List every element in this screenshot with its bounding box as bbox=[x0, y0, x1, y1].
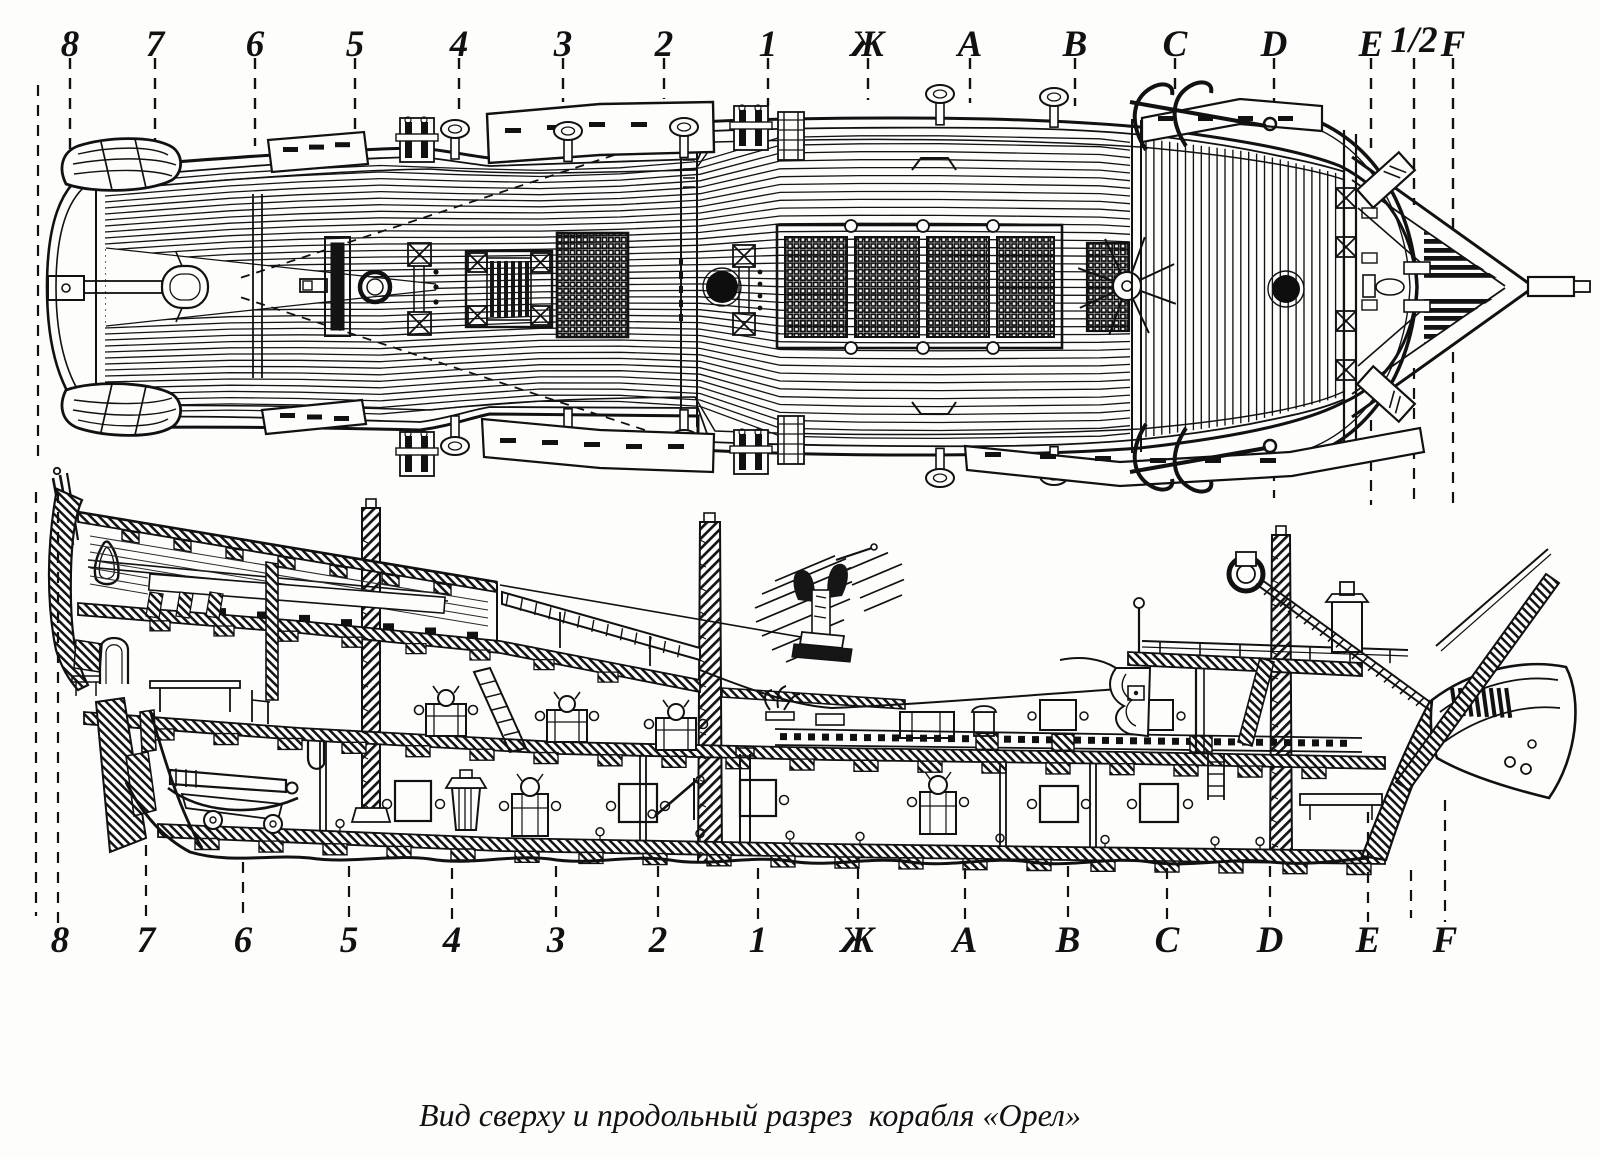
svg-text:F: F bbox=[1440, 24, 1466, 65]
svg-text:3: 3 bbox=[546, 920, 566, 961]
svg-text:A: A bbox=[956, 24, 983, 65]
svg-text:1: 1 bbox=[749, 920, 768, 961]
svg-text:5: 5 bbox=[346, 24, 365, 65]
svg-text:1/2: 1/2 bbox=[1390, 20, 1437, 61]
svg-text:Вид сверху и продольный разрез: Вид сверху и продольный разрез корабля «… bbox=[419, 1097, 1081, 1133]
svg-text:8: 8 bbox=[61, 24, 80, 65]
svg-text:F: F bbox=[1432, 920, 1458, 961]
svg-text:8: 8 bbox=[51, 920, 70, 961]
svg-text:E: E bbox=[1358, 24, 1384, 65]
svg-text:6: 6 bbox=[246, 24, 265, 65]
svg-text:7: 7 bbox=[137, 920, 157, 961]
svg-text:2: 2 bbox=[648, 920, 668, 961]
svg-text:1: 1 bbox=[759, 24, 778, 65]
svg-text:5: 5 bbox=[340, 920, 359, 961]
svg-text:2: 2 bbox=[654, 24, 674, 65]
svg-text:Ж: Ж bbox=[838, 920, 876, 961]
svg-text:D: D bbox=[1260, 24, 1288, 65]
svg-text:B: B bbox=[1062, 24, 1088, 65]
svg-text:4: 4 bbox=[449, 24, 469, 65]
svg-text:E: E bbox=[1355, 920, 1381, 961]
svg-text:A: A bbox=[951, 920, 978, 961]
svg-text:6: 6 bbox=[234, 920, 253, 961]
svg-text:C: C bbox=[1163, 24, 1189, 65]
svg-text:4: 4 bbox=[442, 920, 462, 961]
svg-text:D: D bbox=[1256, 920, 1284, 961]
svg-text:3: 3 bbox=[553, 24, 573, 65]
svg-text:7: 7 bbox=[146, 24, 166, 65]
svg-text:B: B bbox=[1055, 920, 1081, 961]
svg-text:Ж: Ж bbox=[848, 24, 886, 65]
svg-text:C: C bbox=[1155, 920, 1181, 961]
